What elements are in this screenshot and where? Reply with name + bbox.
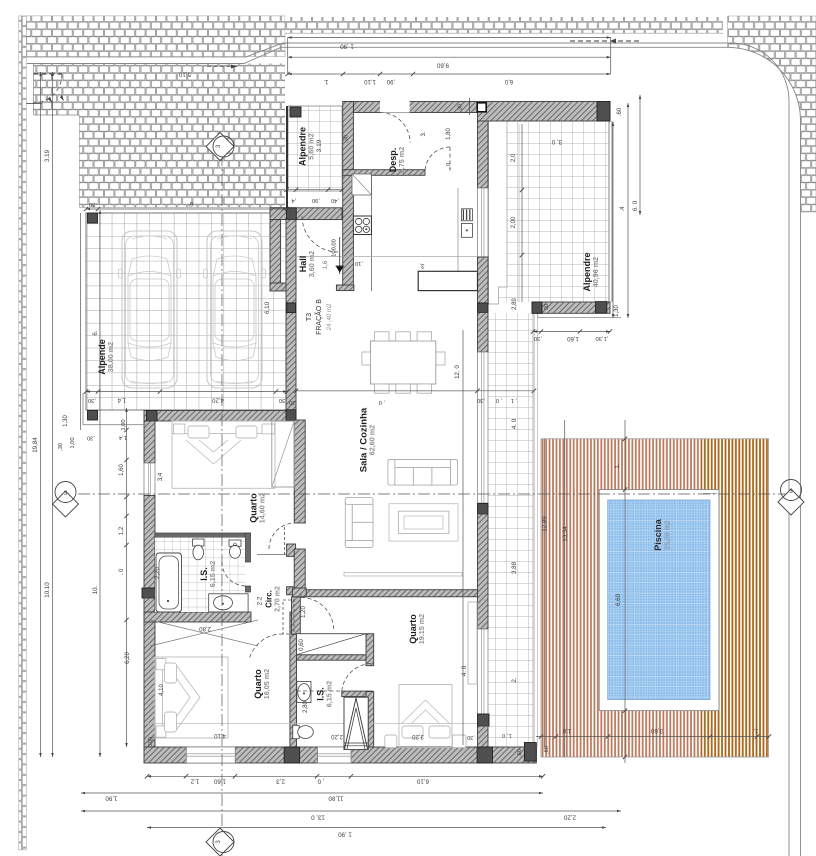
svg-text:6,15 m2: 6,15 m2 (208, 561, 217, 587)
svg-text:12,89: 12,89 (542, 516, 549, 532)
svg-text:2,3: 2,3 (276, 778, 285, 785)
svg-text:3,20: 3,20 (412, 733, 424, 739)
svg-text:.30: .30 (89, 201, 97, 207)
svg-text:1,00: 1,00 (121, 419, 127, 430)
svg-text:1,60: 1,60 (119, 464, 125, 476)
svg-text:Piscina: Piscina (653, 518, 663, 551)
svg-text:1,80: 1,80 (446, 128, 452, 140)
svg-text:6,75 m2: 6,75 m2 (397, 147, 406, 173)
svg-text:,30: ,30 (467, 734, 475, 740)
svg-text:13, 0: 13, 0 (311, 813, 325, 820)
svg-text:5,60 m2: 5,60 m2 (307, 133, 316, 159)
svg-text:1,90: 1,90 (105, 795, 118, 802)
svg-text:1,4: 1,4 (118, 434, 127, 440)
svg-text:6,15 m2: 6,15 m2 (325, 681, 334, 707)
svg-text:3,: 3, (419, 262, 424, 268)
svg-text:3,60: 3,60 (650, 727, 663, 734)
svg-text:, 0: , 0 (446, 163, 452, 169)
svg-text:, 1: , 1 (511, 397, 517, 403)
svg-text:1,8: 1,8 (562, 727, 571, 733)
svg-text:38,00 m2: 38,00 m2 (106, 342, 115, 372)
svg-text:2,20: 2,20 (331, 733, 343, 739)
svg-text:6,0: 6,0 (504, 78, 513, 84)
svg-text:3, 0: 3, 0 (551, 138, 562, 145)
svg-text:,30: ,30 (87, 435, 95, 441)
svg-text:1,2: 1,2 (119, 526, 125, 535)
svg-text:40,96 m2: 40,96 m2 (591, 257, 600, 287)
svg-text:. 0: . 0 (119, 568, 125, 575)
svg-text:,60: ,60 (544, 746, 550, 754)
svg-text:6. 0: 6. 0 (632, 200, 639, 211)
svg-text:1,00: 1,00 (70, 437, 76, 448)
svg-text:,90: ,90 (386, 78, 395, 84)
svg-text:,30: ,30 (344, 135, 350, 143)
svg-text:FRAÇÃO B: FRAÇÃO B (314, 299, 323, 335)
svg-text:2,89: 2,89 (512, 298, 518, 310)
svg-text:1,2: 1,2 (190, 778, 199, 785)
svg-text:,40: ,40 (331, 197, 339, 203)
svg-text:30: 30 (544, 304, 550, 310)
svg-text:2,20: 2,20 (155, 567, 161, 579)
svg-text:3,4: 3,4 (158, 472, 164, 481)
svg-text:,4: ,4 (291, 197, 297, 203)
svg-text:,30: ,30 (279, 397, 287, 403)
svg-text:1 ,90: 1 ,90 (340, 43, 354, 50)
svg-text:3,19: 3,19 (44, 149, 51, 162)
svg-text:, 0: , 0 (496, 397, 502, 403)
svg-text:19.15 m2: 19.15 m2 (417, 614, 426, 644)
svg-text:3,60 m2: 3,60 m2 (307, 251, 316, 277)
svg-text:6,10: 6,10 (416, 778, 429, 785)
svg-text:6,60: 6,60 (615, 593, 622, 606)
svg-text:10.: 10. (92, 585, 99, 594)
svg-text:10,10: 10,10 (44, 582, 51, 598)
svg-text:, 0: , 0 (379, 399, 385, 405)
svg-text:,30: ,30 (534, 335, 542, 341)
svg-text:3.: 3. (421, 131, 427, 136)
svg-text:1,20: 1,20 (301, 606, 307, 618)
svg-text:6,20: 6,20 (125, 652, 131, 664)
svg-text:1,60: 1,60 (567, 335, 579, 341)
svg-text:4,10: 4,10 (214, 732, 226, 738)
svg-text:2,80: 2,80 (303, 701, 309, 713)
svg-text:2,20: 2,20 (563, 813, 576, 820)
svg-text:1, 0: 1, 0 (502, 732, 512, 738)
svg-text:,90: ,90 (312, 197, 320, 203)
svg-text:19,84: 19,84 (32, 437, 39, 453)
svg-text:4,20: 4,20 (212, 397, 224, 403)
svg-text:4,10: 4,10 (159, 684, 165, 696)
svg-text:11,80: 11,80 (328, 795, 344, 802)
svg-text:2,70 m2: 2,70 m2 (275, 586, 282, 612)
svg-text:1,6: 1,6 (323, 260, 329, 269)
svg-text:T3: T3 (306, 313, 313, 321)
svg-text:,30: ,30 (58, 443, 64, 451)
svg-text:12, 0: 12, 0 (454, 365, 461, 379)
svg-text:6': 6' (189, 200, 193, 206)
svg-text:1.: 1. (323, 78, 328, 84)
svg-text:1.: 1. (614, 463, 621, 468)
svg-text:4. 0: 4. 0 (511, 418, 518, 429)
svg-text:,30: ,30 (148, 740, 154, 747)
svg-text:Circ.: Circ. (265, 590, 274, 608)
svg-text:5,10: 5,10 (178, 71, 191, 78)
svg-text:1,30: 1,30 (63, 415, 69, 427)
svg-text:14,60 m2: 14,60 m2 (258, 493, 267, 523)
svg-text:1.: 1. (753, 727, 758, 733)
svg-text:,30: ,30 (289, 399, 297, 405)
svg-text:0,60: 0,60 (299, 639, 305, 651)
svg-text:6.: 6. (92, 330, 99, 335)
svg-text:1,60: 1,60 (213, 778, 226, 785)
svg-text:1,10: 1,10 (364, 78, 376, 84)
svg-text:,10: ,10 (355, 260, 363, 266)
svg-text:9,60: 9,60 (436, 62, 449, 69)
svg-text:1,4: 1,4 (117, 397, 126, 403)
svg-text:2,0: 2,0 (511, 153, 517, 162)
svg-text:13,34: 13,34 (562, 526, 569, 542)
svg-text:16,05 m2: 16,05 m2 (262, 669, 271, 699)
svg-text:2.: 2. (511, 677, 518, 682)
svg-text:62,60 m2: 62,60 m2 (368, 425, 377, 455)
svg-text:2.2: 2.2 (257, 596, 264, 605)
svg-text:,60: ,60 (517, 749, 523, 757)
svg-text:3,88: 3,88 (511, 561, 518, 574)
svg-text:,30: ,30 (88, 397, 96, 403)
svg-text:.60: .60 (617, 107, 623, 116)
svg-text:3.19: 3.19 (316, 139, 323, 152)
svg-text:6,10: 6,10 (264, 301, 271, 314)
svg-text:.4: .4 (620, 206, 626, 212)
svg-text:2,80: 2,80 (199, 625, 211, 631)
svg-text:, 0: , 0 (317, 778, 324, 785)
svg-text:,1,30: ,1,30 (596, 335, 609, 341)
svg-text:,30: ,30 (458, 104, 464, 112)
svg-text:24 ,40 m2: 24 ,40 m2 (327, 303, 333, 330)
svg-text:100,00: 100,00 (332, 239, 338, 257)
svg-text:,30: ,30 (477, 397, 485, 403)
svg-text:1,30: 1,30 (614, 305, 620, 317)
svg-text:4. 0: 4. 0 (461, 665, 468, 676)
svg-text:,30: ,30 (148, 735, 156, 741)
svg-text:2,00: 2,00 (511, 216, 517, 228)
svg-text:1 ,90: 1 ,90 (338, 830, 352, 837)
svg-text:25,00 m2: 25,00 m2 (665, 520, 672, 550)
